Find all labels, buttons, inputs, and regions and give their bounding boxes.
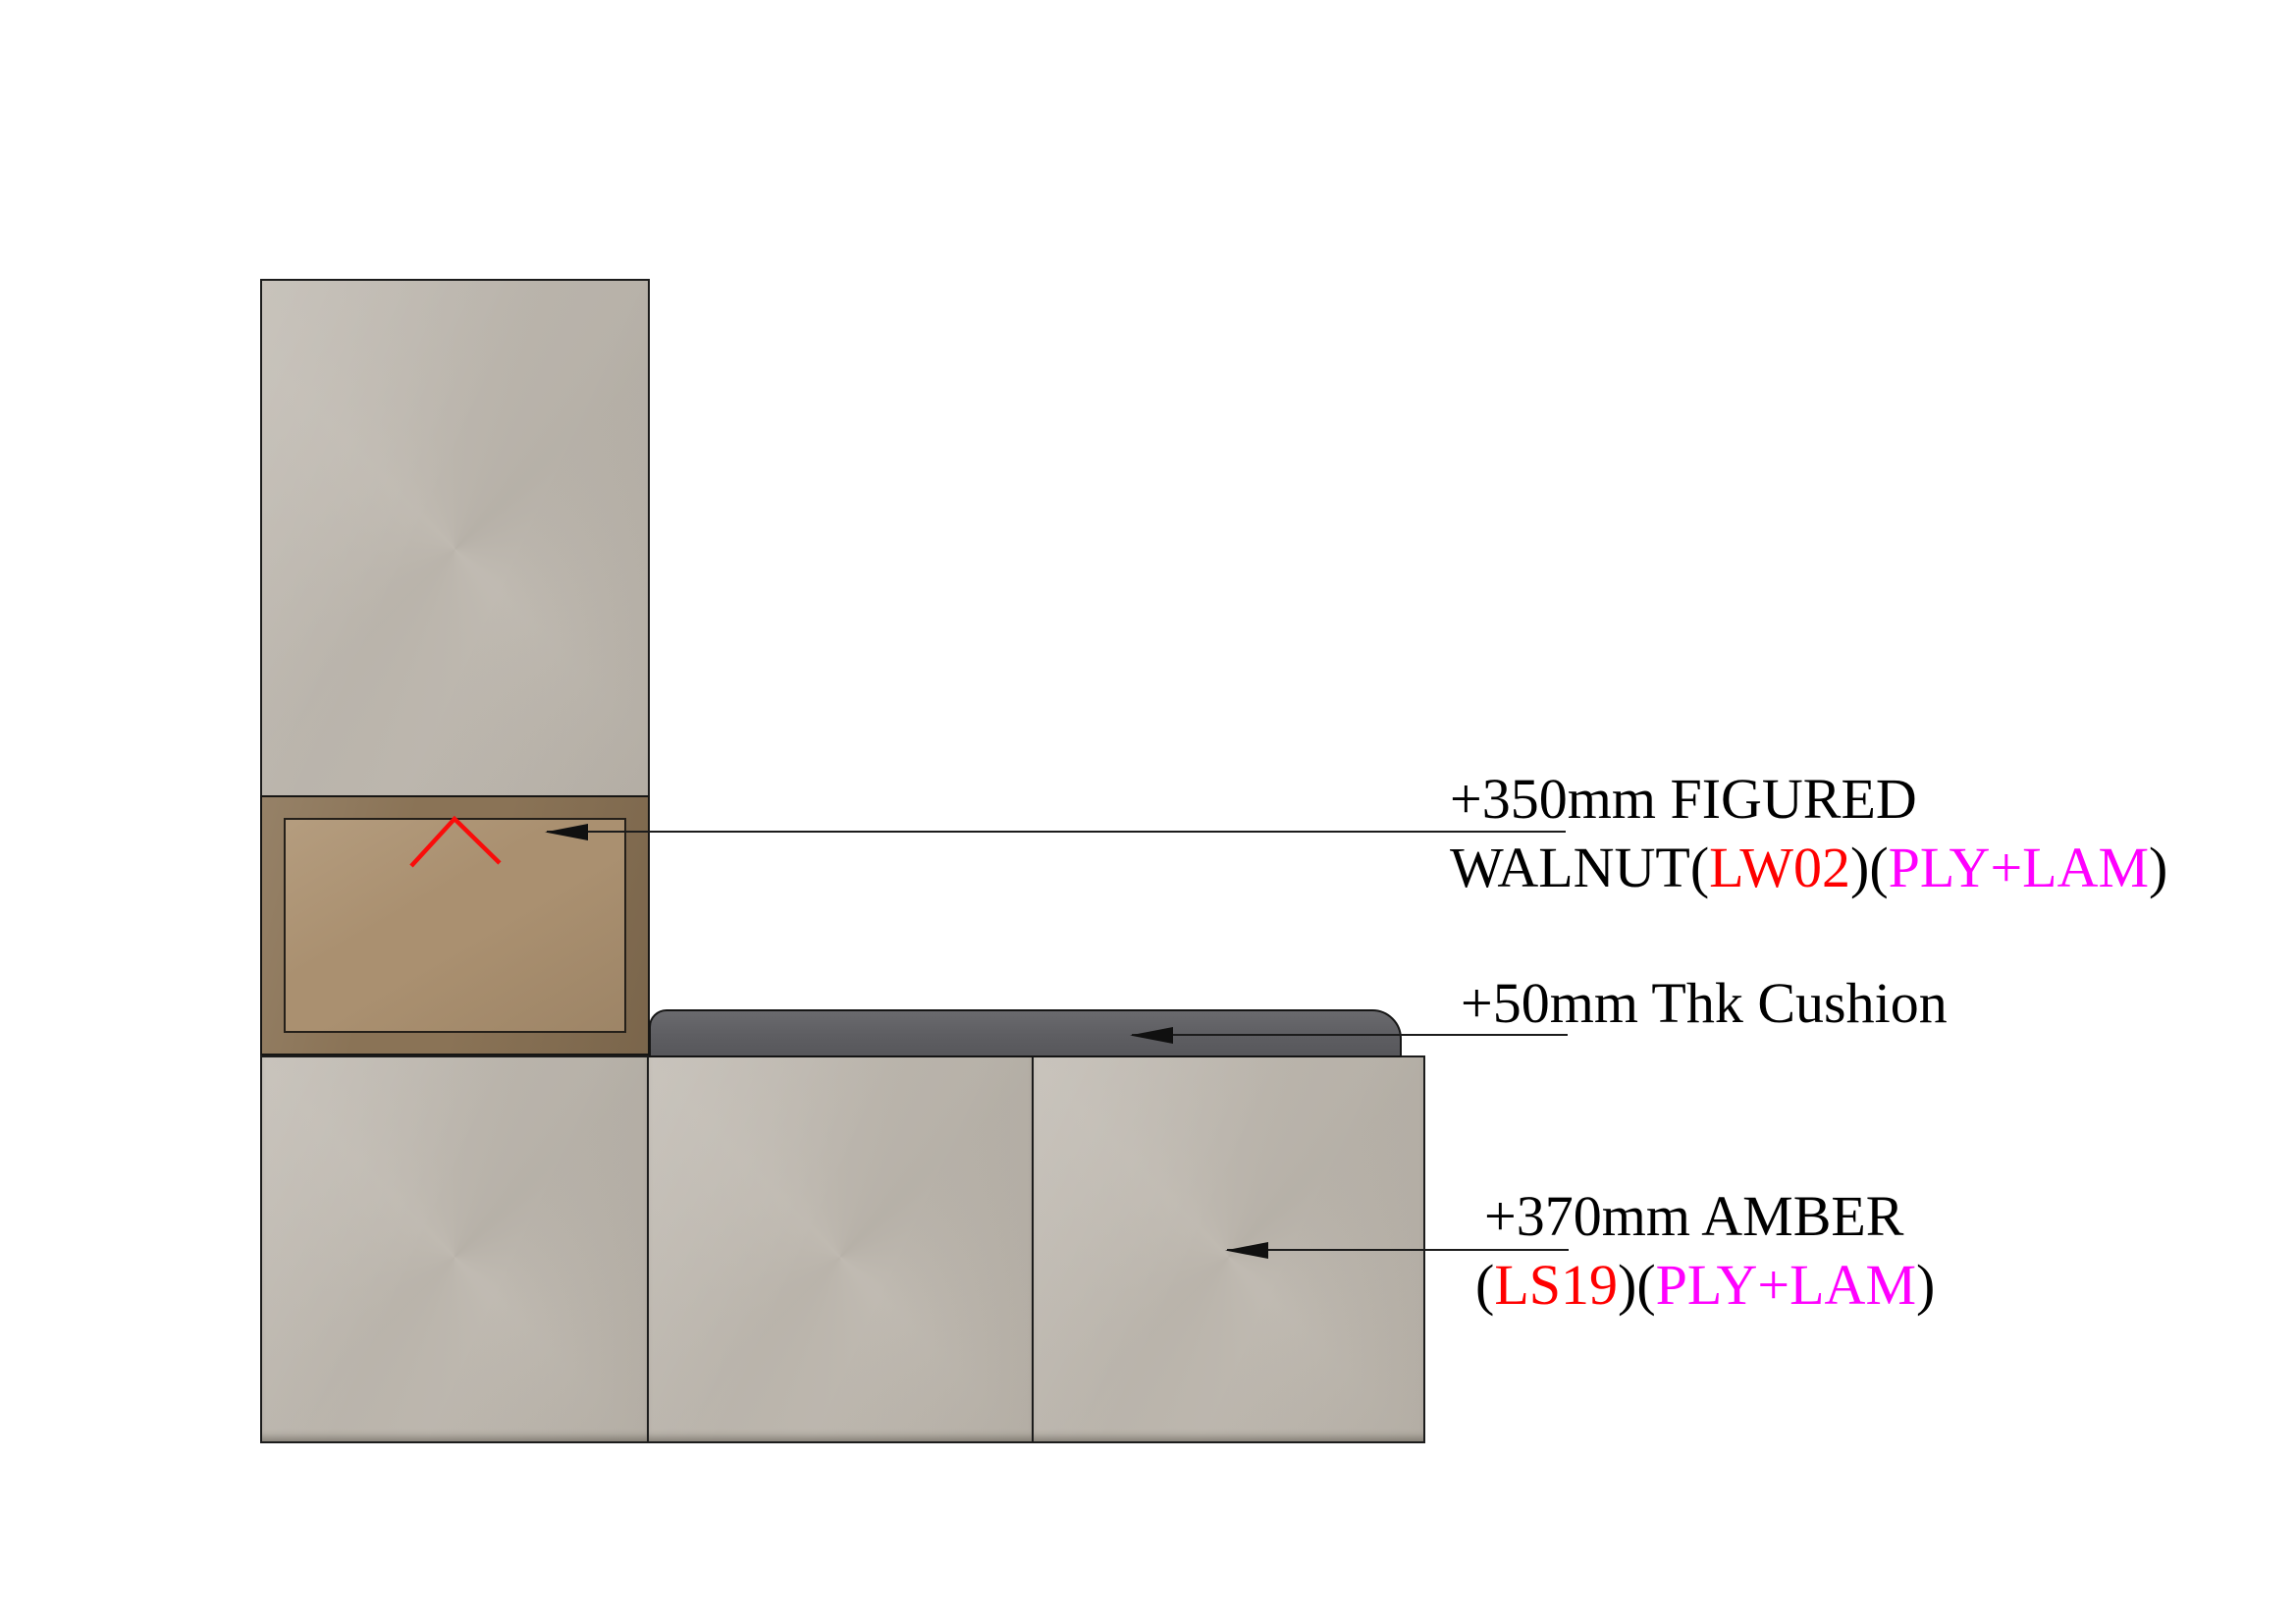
annotation-line: +350mm FIGURED bbox=[1450, 765, 2167, 834]
annotation-text: )( bbox=[1618, 1253, 1656, 1317]
tall-laminate-panel bbox=[260, 279, 650, 797]
drawing-canvas: +350mm FIGURED WALNUT(LW02)(PLY+LAM) +50… bbox=[0, 0, 2296, 1623]
annotation-code-magenta: PLY+LAM bbox=[1889, 836, 2149, 899]
annotation-line: WALNUT(LW02)(PLY+LAM) bbox=[1450, 834, 2167, 902]
annotation-text: +50mm Thk Cushion bbox=[1461, 971, 1948, 1035]
annotation-figured-walnut: +350mm FIGURED WALNUT(LW02)(PLY+LAM) bbox=[1450, 765, 2167, 902]
annotation-code-red: LW02 bbox=[1709, 836, 1850, 899]
annotation-text: ( bbox=[1475, 1253, 1494, 1317]
annotation-text: WALNUT( bbox=[1450, 836, 1709, 899]
annotation-text: ) bbox=[1916, 1253, 1935, 1317]
annotation-cushion: +50mm Thk Cushion bbox=[1461, 969, 1948, 1038]
annotation-line: (LS19)(PLY+LAM) bbox=[1475, 1251, 1935, 1320]
red-chevron-marker-icon bbox=[398, 805, 515, 876]
annotation-line: +370mm AMBER bbox=[1475, 1182, 1935, 1251]
annotation-text: )( bbox=[1850, 836, 1889, 899]
annotation-code-magenta: PLY+LAM bbox=[1656, 1253, 1916, 1317]
bench-panel-left bbox=[260, 1055, 649, 1443]
annotation-code-red: LS19 bbox=[1494, 1253, 1618, 1317]
annotation-text: +370mm AMBER bbox=[1484, 1184, 1904, 1248]
bench-panel-middle bbox=[649, 1055, 1034, 1443]
annotation-text: +350mm FIGURED bbox=[1450, 767, 1917, 831]
leader-line-walnut bbox=[547, 831, 1566, 833]
annotation-text: ) bbox=[2149, 836, 2167, 899]
annotation-amber: +370mm AMBER (LS19)(PLY+LAM) bbox=[1475, 1182, 1935, 1320]
annotation-line: +50mm Thk Cushion bbox=[1461, 969, 1948, 1038]
